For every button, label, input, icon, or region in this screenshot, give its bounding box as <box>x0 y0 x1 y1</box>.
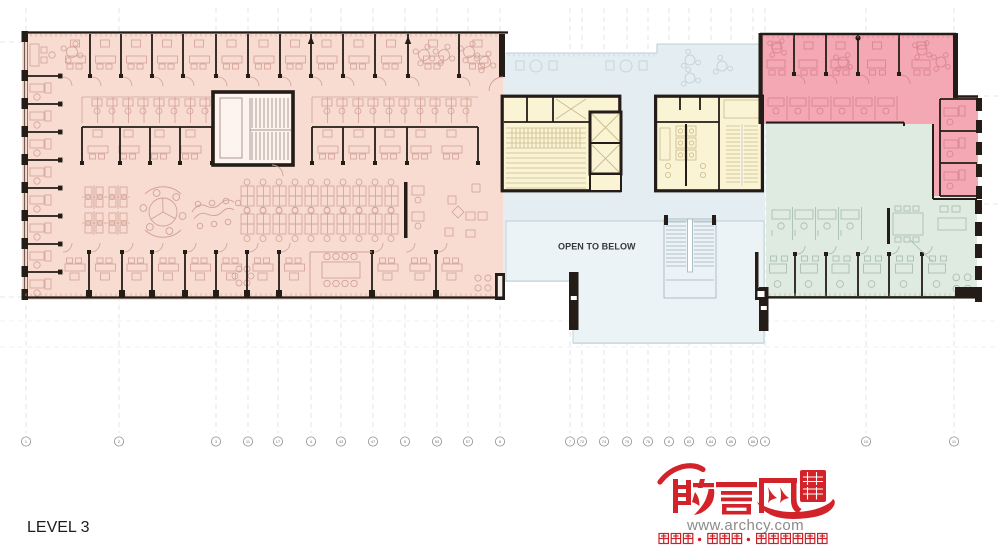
svg-text:76: 76 <box>646 439 651 444</box>
svg-text:75: 75 <box>625 439 630 444</box>
svg-text:85: 85 <box>729 439 734 444</box>
svg-text:www.archcy.com: www.archcy.com <box>686 517 804 534</box>
svg-text:53: 53 <box>435 439 440 444</box>
svg-text:43: 43 <box>339 439 344 444</box>
svg-text:57: 57 <box>466 439 471 444</box>
svg-text:74: 74 <box>602 439 607 444</box>
svg-text:17: 17 <box>276 439 281 444</box>
svg-text:10: 10 <box>864 439 869 444</box>
svg-text:47: 47 <box>371 439 376 444</box>
svg-text:72: 72 <box>580 439 585 444</box>
svg-text:86: 86 <box>751 439 756 444</box>
svg-text:LEVEL 3: LEVEL 3 <box>27 519 90 536</box>
svg-text:OPEN TO BELOW: OPEN TO BELOW <box>558 242 636 252</box>
svg-text:84: 84 <box>709 439 714 444</box>
svg-text:82: 82 <box>687 439 692 444</box>
